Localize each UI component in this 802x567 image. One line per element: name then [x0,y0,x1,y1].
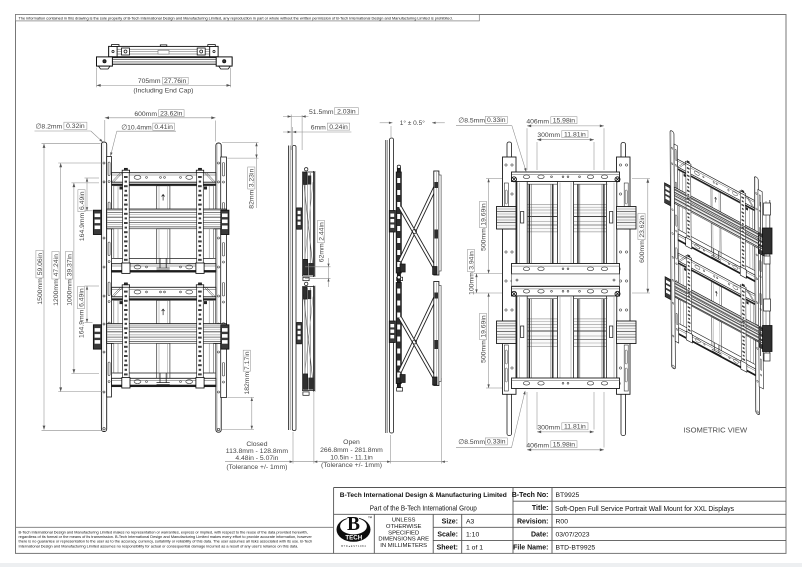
svg-text:∅8.2mm: ∅8.2mm [36,124,63,131]
svg-text:4.48in - 5.07in: 4.48in - 5.07in [235,455,278,462]
svg-text:The information contained in t: The information contained in this drawin… [19,17,453,21]
svg-text:600mm: 600mm [639,240,646,263]
svg-text:182mm: 182mm [244,372,251,395]
svg-text:406mm: 406mm [526,118,549,125]
svg-text:19.69in: 19.69in [480,203,487,226]
svg-text:Closed: Closed [246,441,267,448]
svg-text:1:10: 1:10 [466,531,479,538]
svg-text:7.17in: 7.17in [244,351,251,370]
svg-text:OTHERWISE: OTHERWISE [386,524,422,530]
svg-text:0.33in: 0.33in [487,117,506,124]
svg-text:113.8mm - 128.8mm: 113.8mm - 128.8mm [226,448,289,455]
svg-text:1 of 1: 1 of 1 [466,545,483,552]
svg-text:Soft-Open Full Service Portrai: Soft-Open Full Service Portrait Wall Mou… [555,506,734,513]
svg-text:Scale:: Scale: [437,531,458,538]
svg-text:266.8mm - 281.8mm: 266.8mm - 281.8mm [320,447,383,454]
svg-text:705mm: 705mm [138,78,161,85]
svg-text:1500mm: 1500mm [37,278,44,305]
svg-text:(Including End Cap): (Including End Cap) [133,87,193,94]
svg-text:B-Tech International Design &: B-Tech International Design & Manufactur… [340,492,507,499]
svg-text:6mm: 6mm [311,125,326,132]
svg-text:TECH: TECH [345,534,362,541]
svg-text:™: ™ [368,516,373,521]
svg-text:there is no guarantee or repre: there is no guarantee or representation … [19,540,313,544]
svg-text:100mm: 100mm [468,272,475,295]
svg-text:0.33in: 0.33in [487,439,506,446]
svg-text:regardless of its format or th: regardless of its format or the means of… [19,535,313,539]
svg-text:International Design and Manuf: International Design and Manufacturing L… [19,544,299,548]
svg-text:62mm: 62mm [318,243,325,262]
svg-text:3.94in: 3.94in [468,251,475,270]
svg-text:Date:: Date: [531,531,549,538]
svg-text:39.37in: 39.37in [66,254,73,277]
svg-text:15.98in: 15.98in [553,118,576,125]
svg-text:UNLESS: UNLESS [392,518,416,524]
svg-text:11.81in: 11.81in [564,131,586,138]
svg-text:51.5mm: 51.5mm [309,109,334,116]
svg-text:47.24in: 47.24in [53,254,60,277]
svg-text:15.98in: 15.98in [553,442,576,449]
svg-text:File Name:: File Name: [513,545,548,552]
svg-text:B: B [347,514,360,535]
svg-text:Sheet:: Sheet: [437,545,458,552]
svg-text:∅10.4mm: ∅10.4mm [121,124,152,131]
svg-text:03/07/2023: 03/07/2023 [556,531,590,538]
svg-text:6.49in: 6.49in [79,191,86,210]
svg-text:0.32in: 0.32in [66,123,85,130]
svg-text:Part of the B-Tech Internation: Part of the B-Tech International Group [370,505,477,512]
svg-text:1200mm: 1200mm [53,279,60,306]
svg-text:0.24in: 0.24in [329,124,348,131]
svg-text:406mm: 406mm [526,442,549,449]
svg-text:600mm: 600mm [134,111,157,118]
svg-text:∅8.5mm: ∅8.5mm [458,439,485,446]
svg-text:(Tolerance +/- 1mm): (Tolerance +/- 1mm) [226,464,287,471]
svg-text:10.5in - 11.1in: 10.5in - 11.1in [330,454,373,461]
svg-text:6.49in: 6.49in [78,288,85,307]
svg-text:B-Tech No:: B-Tech No: [512,492,549,499]
svg-text:B-Tech International Design an: B-Tech International Design and Manufact… [19,530,308,534]
svg-text:27.76in: 27.76in [164,78,187,85]
svg-text:500mm: 500mm [480,228,487,251]
svg-text:Title:: Title: [532,505,549,512]
svg-text:300mm: 300mm [537,424,560,431]
svg-text:∅8.5mm: ∅8.5mm [458,118,485,125]
svg-text:3.23in: 3.23in [249,169,256,188]
svg-text:1° ± 0.5°: 1° ± 0.5° [400,119,425,127]
svg-text:2.44in: 2.44in [318,222,325,241]
svg-text:0.41in: 0.41in [154,124,173,131]
svg-text:19.69in: 19.69in [480,315,487,338]
svg-text:82mm: 82mm [249,189,256,208]
svg-text:BT9925: BT9925 [556,492,580,499]
svg-text:IN MILLIMETERS: IN MILLIMETERS [380,543,427,549]
svg-text:23.62in: 23.62in [160,110,183,117]
svg-text:500mm: 500mm [480,340,487,363]
svg-text:300mm: 300mm [537,132,560,139]
svg-text:59.06in: 59.06in [37,253,44,276]
svg-text:ISOMETRIC VIEW: ISOMETRIC VIEW [683,426,748,435]
svg-text:BTD-BT9925: BTD-BT9925 [556,545,596,552]
svg-text:B T D ● E S T 1 9 8 4: B T D ● E S T 1 9 8 4 [341,544,366,548]
svg-text:Open: Open [343,439,360,446]
svg-text:164.9mm: 164.9mm [79,212,86,241]
svg-text:A3: A3 [466,518,475,525]
svg-text:11.81in: 11.81in [564,424,586,431]
svg-text:Revision:: Revision: [517,518,549,525]
svg-text:(Tolerance +/- 1mm): (Tolerance +/- 1mm) [321,462,382,469]
svg-text:SPECIFIED: SPECIFIED [388,530,419,536]
svg-text:2.03in: 2.03in [337,109,356,116]
svg-text:R00: R00 [556,518,569,525]
svg-text:23.62in: 23.62in [639,215,646,238]
svg-text:164.9mm: 164.9mm [78,309,85,338]
svg-text:DIMENSIONS ARE: DIMENSIONS ARE [378,537,429,543]
svg-text:Size:: Size: [442,518,458,525]
svg-text:1000mm: 1000mm [66,279,73,306]
